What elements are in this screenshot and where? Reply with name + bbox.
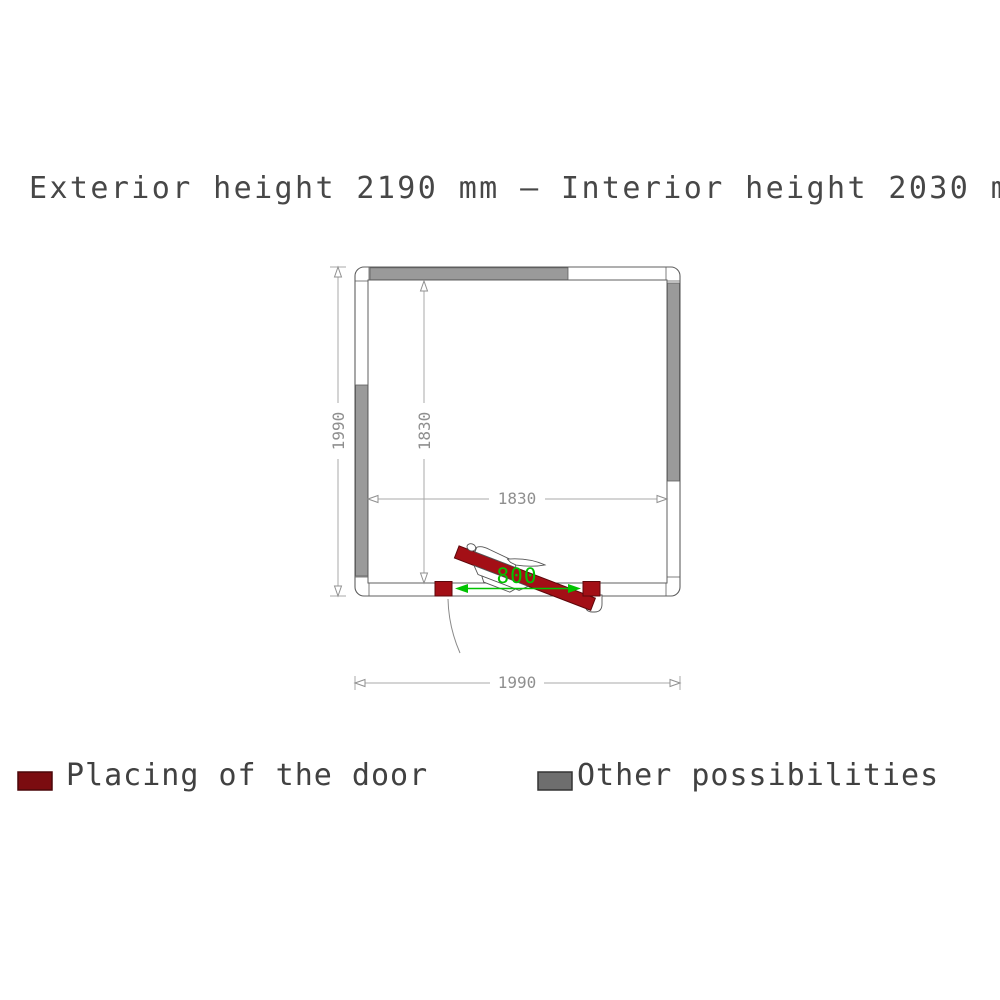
wall-panel-other-top [370, 268, 568, 280]
wall-panel-other-right [667, 283, 679, 481]
legend-label-other: Other possibilities [577, 760, 939, 792]
wall-panel-other-left [356, 385, 368, 576]
floor-plan: 1990 1830 1830 1990 [0, 0, 1000, 1000]
dim-exterior-vertical: 1990 [329, 267, 348, 596]
dim-label-interior-horizontal: 1830 [498, 489, 537, 508]
dim-label-door-opening: 800 [497, 564, 538, 588]
dim-exterior-horizontal: 1990 [355, 673, 680, 692]
legend-label-door: Placing of the door [66, 760, 428, 792]
wall-outline [355, 267, 680, 596]
door-swing-arc [448, 599, 460, 653]
dim-label-exterior-vertical: 1990 [329, 412, 348, 451]
legend-swatch-other [537, 771, 573, 791]
door-jamb-right [583, 582, 600, 597]
door-jamb-left [435, 582, 452, 597]
legend-swatch-door [17, 771, 53, 791]
dim-label-interior-vertical: 1830 [415, 412, 434, 451]
dim-label-exterior-horizontal: 1990 [498, 673, 537, 692]
